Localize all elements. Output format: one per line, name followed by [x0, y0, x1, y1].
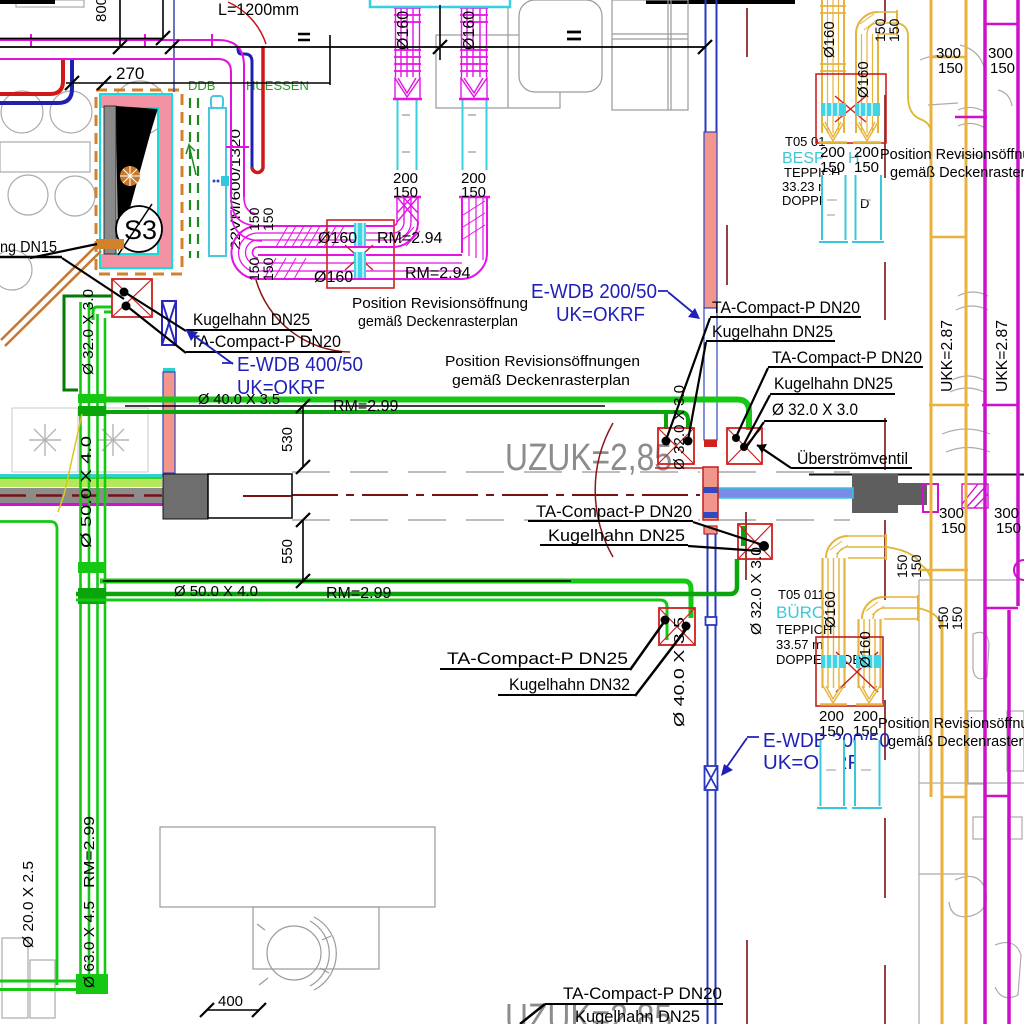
svg-text:T05 011: T05 011: [778, 587, 825, 602]
svg-text:Ø 40.0 X 3.5: Ø 40.0 X 3.5: [671, 617, 688, 727]
svg-text:Kugelhahn DN32: Kugelhahn DN32: [509, 675, 630, 694]
svg-text:E-WDB 200/50: E-WDB 200/50: [531, 281, 657, 303]
svg-text:Ø 50.0 X 4.0: Ø 50.0 X 4.0: [78, 436, 95, 548]
svg-text:L=1200mm: L=1200mm: [218, 0, 299, 19]
svg-text:UK=OKRF: UK=OKRF: [763, 752, 860, 774]
svg-text:Überströmventil: Überströmventil: [797, 449, 908, 468]
svg-text:RM=2.99: RM=2.99: [81, 816, 98, 888]
svg-text:RM=2.99: RM=2.99: [333, 398, 398, 415]
svg-text:Ø160: Ø160: [855, 61, 872, 98]
svg-text:Ø160: Ø160: [821, 21, 838, 58]
svg-text:S3: S3: [124, 215, 157, 245]
svg-text:HUESSEN: HUESSEN: [246, 78, 309, 93]
svg-text:DOPPE: DOPPE: [782, 193, 828, 208]
svg-text:RM=2.94: RM=2.94: [377, 230, 442, 247]
svg-text:150: 150: [908, 554, 924, 578]
svg-text:Ø160: Ø160: [857, 631, 874, 668]
svg-text:gemäß Deckenrasterplan: gemäß Deckenrasterplan: [890, 165, 1024, 181]
svg-text:150: 150: [941, 520, 966, 537]
svg-text:Kugelhahn DN25: Kugelhahn DN25: [548, 526, 685, 545]
svg-text:BÜRO: BÜRO: [776, 603, 825, 622]
svg-text:Ø 63.0 X 4.5: Ø 63.0 X 4.5: [81, 901, 98, 988]
svg-text:150: 150: [886, 18, 902, 42]
svg-text:150: 150: [854, 159, 879, 176]
svg-text:TA-Compact-P DN20: TA-Compact-P DN20: [536, 502, 692, 521]
svg-text:Ø160: Ø160: [461, 11, 478, 50]
svg-text:D: D: [860, 196, 869, 211]
svg-text:150: 150: [393, 184, 418, 201]
svg-text:530: 530: [279, 427, 296, 452]
svg-text:TA-Compact-P DN20: TA-Compact-P DN20: [563, 984, 722, 1003]
svg-text:150: 150: [461, 184, 486, 201]
svg-text:Ø160: Ø160: [822, 591, 839, 628]
svg-text:Kugelhahn DN25: Kugelhahn DN25: [774, 374, 893, 393]
svg-text:gemäß Deckenrasterplan: gemäß Deckenrasterplan: [358, 314, 518, 330]
svg-text:Ø 32.0 X 3.0: Ø 32.0 X 3.0: [671, 385, 688, 470]
svg-text:Position Revisionsöffnungen: Position Revisionsöffnungen: [880, 147, 1024, 163]
svg-text:150: 150: [990, 60, 1015, 77]
svg-text:UKK=2.87: UKK=2.87: [939, 320, 956, 392]
svg-text:Ø160: Ø160: [318, 230, 357, 247]
svg-text:150: 150: [938, 60, 963, 77]
svg-text:Position Revisionsöffnungen: Position Revisionsöffnungen: [445, 354, 640, 370]
svg-text:Position Revisionsöffnung: Position Revisionsöffnung: [352, 296, 528, 312]
svg-text:Kugelhahn DN25: Kugelhahn DN25: [575, 1007, 700, 1024]
svg-text:UKK=2.87: UKK=2.87: [994, 320, 1011, 392]
svg-text:550: 550: [279, 539, 296, 564]
svg-text:270: 270: [116, 64, 144, 83]
svg-text:Ø160: Ø160: [395, 11, 412, 50]
svg-text:DDB: DDB: [188, 78, 215, 93]
svg-text:RM=2.99: RM=2.99: [326, 585, 391, 602]
svg-text:UK=OKRF: UK=OKRF: [237, 377, 325, 399]
svg-text:UZUK=2,85: UZUK=2,85: [505, 437, 672, 479]
svg-text:150: 150: [260, 207, 276, 231]
svg-text:Ø160: Ø160: [314, 269, 353, 286]
svg-text:Ø 50.0 X 4.0: Ø 50.0 X 4.0: [174, 583, 258, 600]
svg-text:gemäß Deckenrasterplan: gemäß Deckenrasterplan: [888, 734, 1024, 750]
svg-text:Kugelhahn DN25: Kugelhahn DN25: [193, 310, 310, 329]
svg-text:Kugelhahn DN25: Kugelhahn DN25: [712, 322, 833, 341]
svg-text:TA-Compact-P DN20: TA-Compact-P DN20: [190, 332, 341, 351]
svg-text:TA-Compact-P DN20: TA-Compact-P DN20: [712, 298, 860, 317]
svg-text:TA-Compact-P DN20: TA-Compact-P DN20: [772, 348, 922, 367]
svg-text:DOPPEL: DOPPEL: [776, 652, 829, 667]
svg-text:150: 150: [949, 606, 965, 630]
svg-text:150: 150: [260, 257, 276, 281]
svg-text:Ø 32.0 X 3.0: Ø 32.0 X 3.0: [80, 289, 97, 375]
svg-text:150: 150: [820, 159, 845, 176]
svg-text:RM=2.94: RM=2.94: [405, 265, 470, 282]
svg-text:Position Revisionsöffnungen: Position Revisionsöffnungen: [878, 716, 1024, 732]
svg-text:gemäß Deckenrasterplan: gemäß Deckenrasterplan: [452, 373, 630, 389]
svg-text:UK=OKRF: UK=OKRF: [556, 304, 645, 326]
svg-text:800: 800: [93, 0, 110, 22]
svg-text:150: 150: [996, 520, 1021, 537]
svg-text:Ø 20.0 X 2.5: Ø 20.0 X 2.5: [20, 861, 37, 948]
svg-text:400: 400: [218, 993, 243, 1010]
svg-text:Ø 32.0 X 3.0: Ø 32.0 X 3.0: [748, 547, 765, 635]
svg-text:E-WDB 400/50: E-WDB 400/50: [237, 354, 363, 376]
svg-text:TA-Compact-P DN25: TA-Compact-P DN25: [447, 649, 628, 668]
svg-text:Ø 32.0 X 3.0: Ø 32.0 X 3.0: [772, 400, 858, 419]
